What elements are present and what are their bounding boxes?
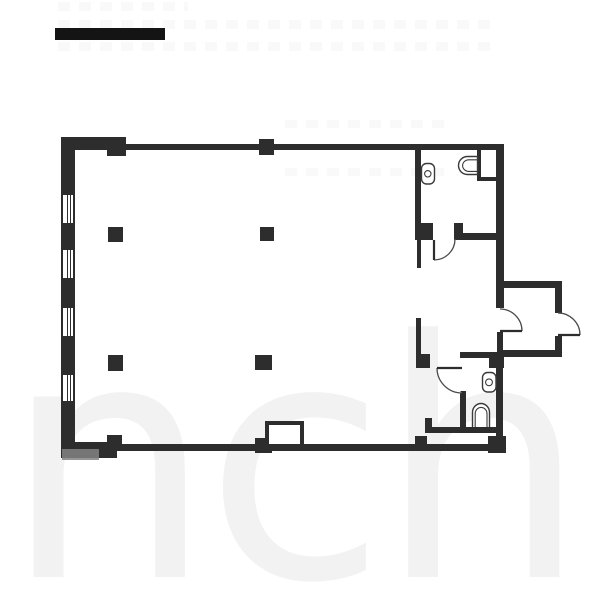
corridor-wall-lower: [416, 318, 421, 355]
top-wall-column: [259, 139, 274, 155]
top-left-bar: [55, 28, 165, 40]
left-wall-2: [61, 223, 75, 250]
left-wall-4: [61, 336, 75, 375]
column-b1: [108, 355, 123, 371]
left-wall-3: [61, 278, 75, 308]
right-wall-mid: [497, 332, 503, 352]
left-window-4: [61, 375, 75, 401]
watermark-overlap-patch: [62, 449, 99, 460]
bath2-bottom-wall: [425, 427, 496, 433]
corridor-wall-upper: [417, 240, 421, 268]
floor-plan: [0, 0, 600, 600]
porch-right-wall-up: [555, 281, 562, 313]
column-b2: [255, 355, 272, 370]
window-mullion: [67, 250, 71, 278]
bath2-left-wall: [460, 391, 466, 432]
bottom-right-block: [488, 436, 506, 453]
left-wall-1: [61, 137, 75, 195]
bottom-step-block: [415, 436, 427, 445]
bottom-wall-niche: [265, 421, 304, 448]
window-mullion: [67, 308, 71, 336]
left-window-3: [61, 308, 75, 336]
bath2-junction-block: [489, 352, 504, 368]
porch-bottom-wall: [503, 350, 562, 357]
corridor-wall-foot: [416, 354, 430, 368]
column-a2: [260, 227, 274, 241]
window-mullion: [67, 195, 71, 223]
bath2-left-stub: [425, 418, 432, 430]
left-window-2: [61, 250, 75, 278]
right-wall-lower: [496, 368, 503, 444]
column-a1: [108, 227, 123, 242]
bath1-left-wall: [415, 150, 421, 223]
bath1-bottom-wall: [458, 233, 497, 240]
bath2-top-wall: [460, 352, 490, 358]
closet-wall-bottom: [477, 177, 498, 181]
porch-top-wall: [503, 281, 562, 288]
bath1-door-block: [415, 223, 433, 240]
window-mullion: [67, 375, 71, 401]
floor-plan-image: inch: [0, 0, 600, 600]
bottom-wall-column-1: [107, 435, 122, 451]
top-wall: [121, 144, 504, 150]
left-window-1: [61, 195, 75, 223]
